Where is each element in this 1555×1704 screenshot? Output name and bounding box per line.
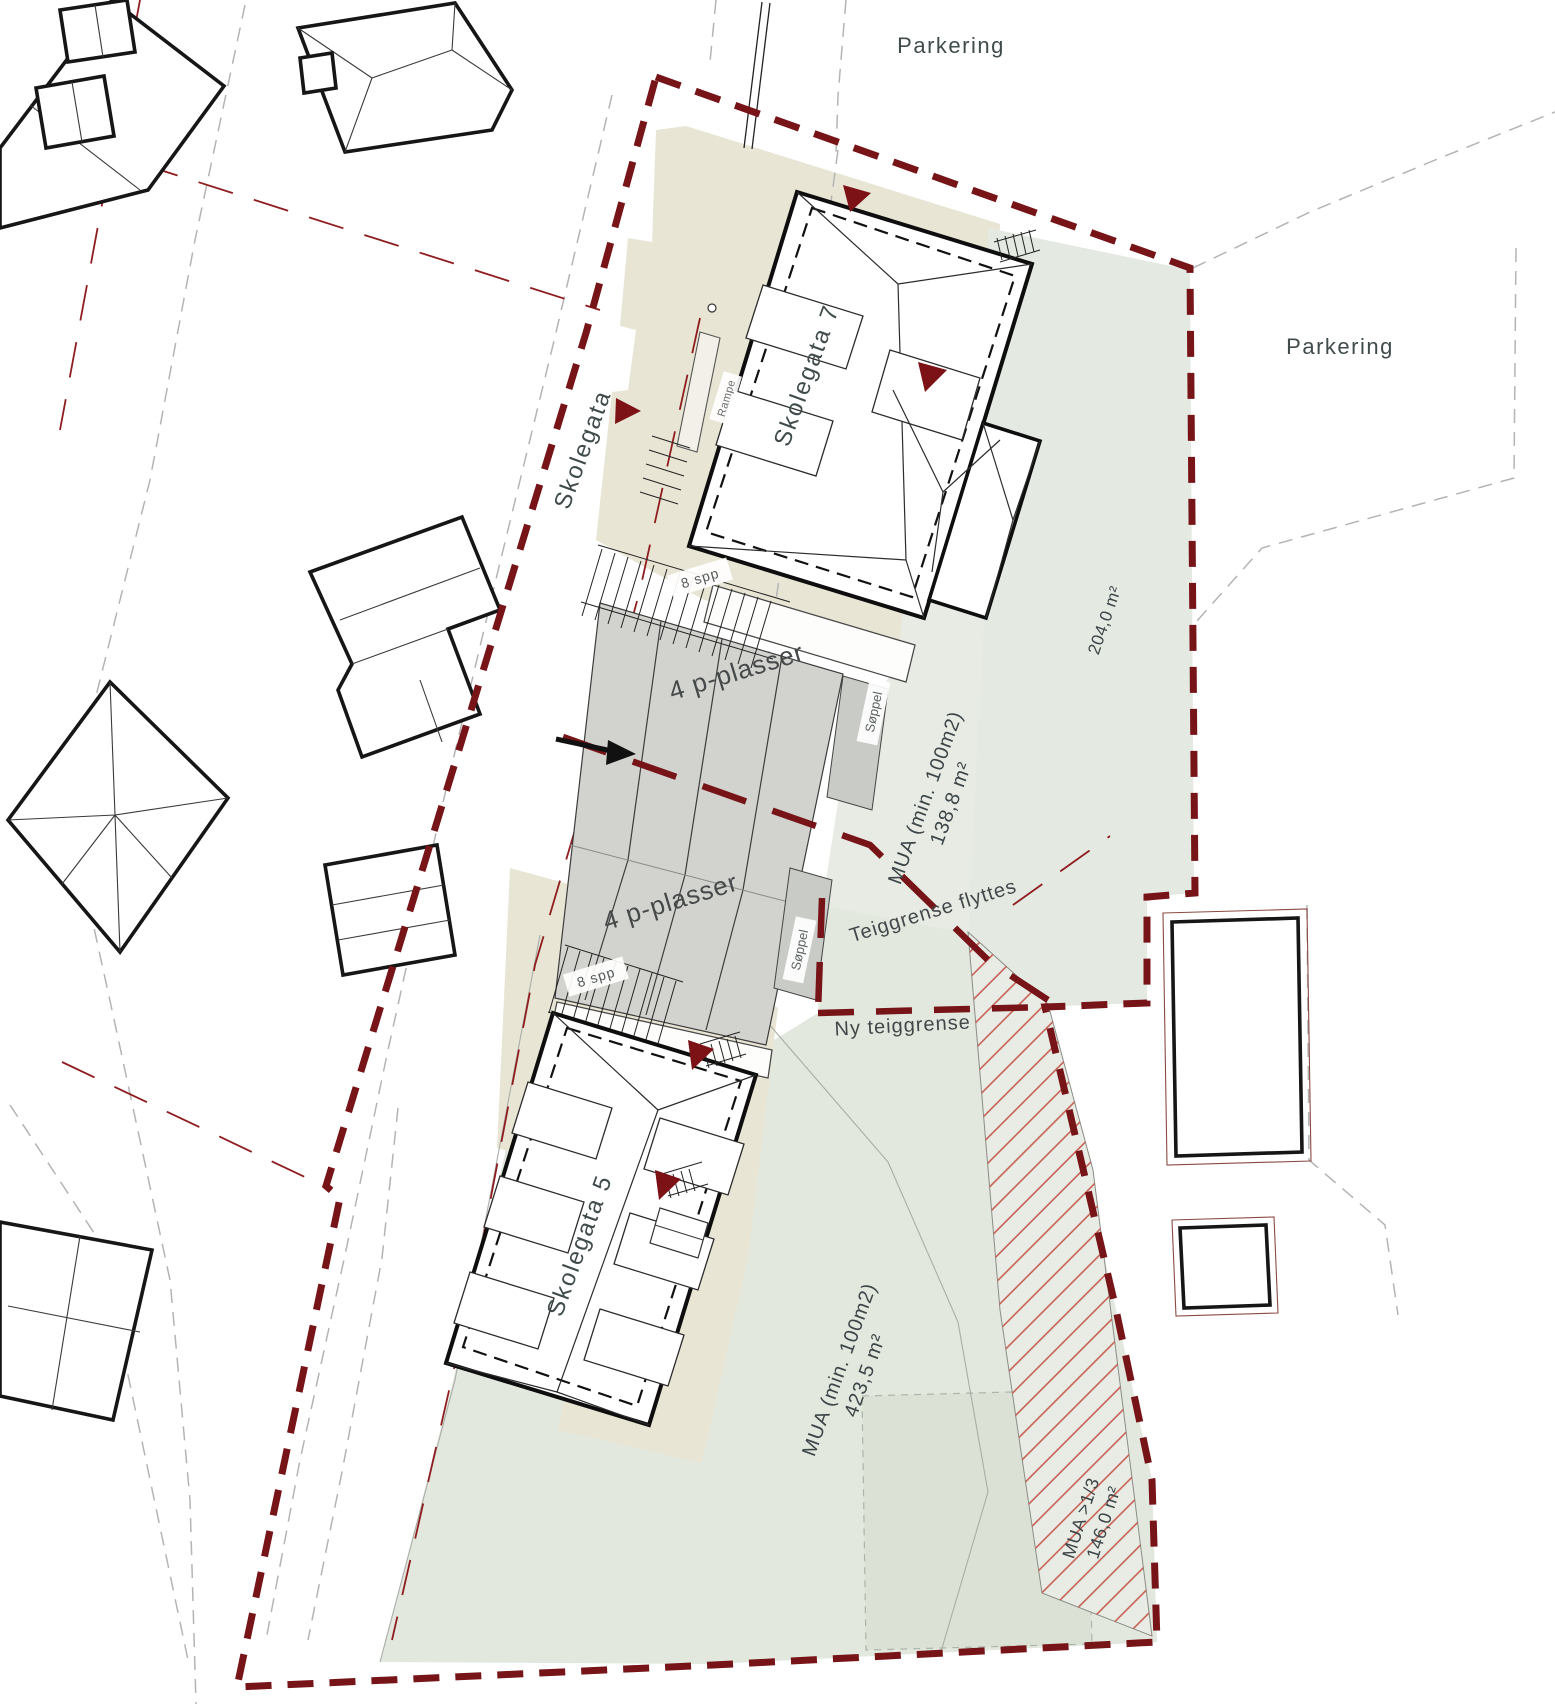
curb-line [752, 3, 770, 149]
neighbor-building [1180, 1225, 1270, 1308]
old-boundary-line [88, 147, 600, 310]
neighbor-building [0, 1222, 152, 1420]
neighbor-building [1172, 918, 1302, 1156]
label-parkering-top: Parkering [897, 33, 1005, 58]
ramp-post [708, 304, 716, 312]
neighbor-building [300, 53, 336, 93]
old-boundary-line [62, 1062, 328, 1188]
neighbor-building [310, 517, 500, 757]
cadastral-line [1193, 112, 1555, 268]
label-parkering-right: Parkering [1286, 334, 1394, 359]
neighbor-building [325, 845, 455, 975]
cadastral-line [836, 0, 846, 152]
site-plan-page: Parkering Parkering Skolegata Skolegata … [0, 0, 1555, 1704]
neighbor-building [60, 0, 135, 62]
curb-line [744, 2, 762, 148]
cadastral-line [710, 0, 716, 62]
neighbor-building [36, 76, 114, 148]
site-plan-drawing: Parkering Parkering Skolegata Skolegata … [0, 0, 1555, 1704]
cadastral-line [1307, 905, 1398, 1315]
cadastral-line [1196, 248, 1516, 622]
cadastral-line [308, 1108, 398, 1640]
